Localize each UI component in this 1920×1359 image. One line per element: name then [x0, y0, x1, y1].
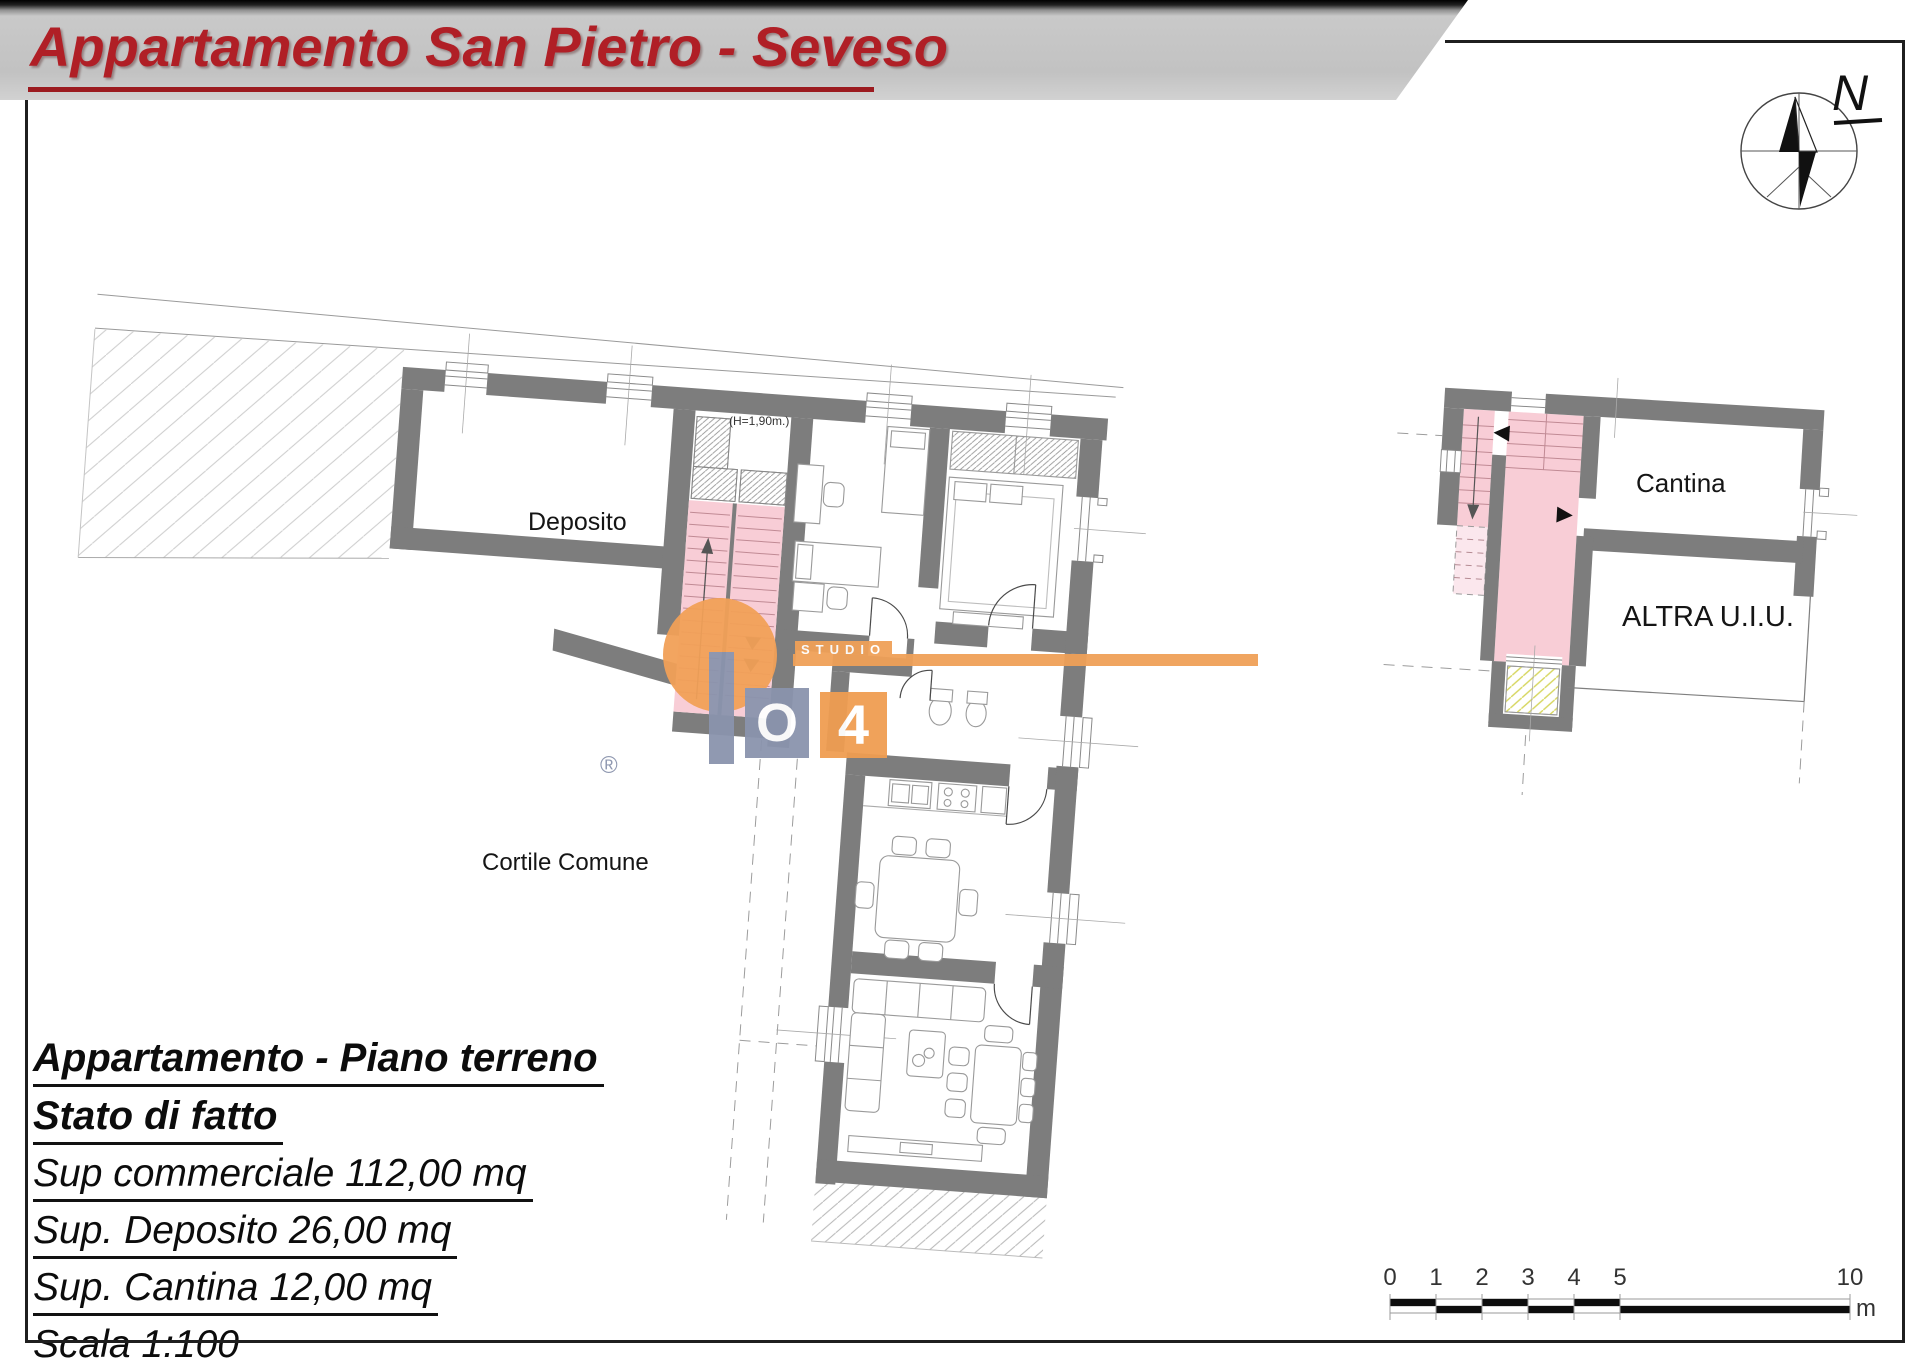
info-line-sup-commerciale: Sup commerciale 112,00 mq	[33, 1152, 604, 1202]
room-label-deposito: Deposito	[528, 508, 627, 537]
page-border-top	[1445, 40, 1905, 43]
info-block: Appartamento - Piano terreno Stato di fa…	[33, 1036, 604, 1359]
courtyard-hatch	[78, 327, 404, 580]
page-border-right	[1902, 40, 1905, 1343]
scale-bar-graphic	[1390, 1294, 1850, 1320]
info-line-title: Appartamento - Piano terreno	[33, 1036, 604, 1087]
title-underline	[28, 87, 874, 92]
plan-sheet: N De	[0, 0, 1920, 1359]
room-label-cantina: Cantina	[1636, 468, 1726, 499]
logo-studio-label: STUDIO	[795, 641, 892, 658]
page-border-left	[25, 100, 28, 1343]
info-line-sup-cantina: Sup. Cantina 12,00 mq	[33, 1266, 604, 1316]
page-title: Appartamento San Pietro - Seveso	[30, 14, 948, 79]
info-line-sup-deposito: Sup. Deposito 26,00 mq	[33, 1209, 604, 1259]
cellar-plan-drawing	[1376, 365, 1864, 814]
scale-tick-0: 0	[1372, 1264, 1408, 1292]
north-compass: N	[1741, 65, 1882, 209]
scale-unit-label: m	[1856, 1295, 1876, 1323]
scale-tick-3: 3	[1510, 1264, 1546, 1292]
logo-bar-1	[709, 652, 734, 764]
scale-tick-2: 2	[1464, 1264, 1500, 1292]
scale-tick-5: 5	[1602, 1264, 1638, 1292]
info-line-state: Stato di fatto	[33, 1094, 604, 1145]
room-label-altra-uiu: ALTRA U.I.U.	[1622, 601, 1794, 634]
scale-tick-10: 10	[1832, 1264, 1868, 1292]
compass-n-text: N	[1832, 65, 1869, 121]
title-banner: Appartamento San Pietro - Seveso	[0, 0, 1468, 100]
logo-digit-4: 4	[820, 692, 887, 758]
room-label-cortile-comune: Cortile Comune	[482, 849, 649, 877]
annotation-height-note: (H=1,90m.)	[729, 414, 789, 428]
scale-tick-1: 1	[1418, 1264, 1454, 1292]
logo-letter-o: O	[745, 688, 809, 758]
page-border-bottom	[25, 1340, 1905, 1343]
scale-tick-4: 4	[1556, 1264, 1592, 1292]
registered-mark: ®	[600, 752, 618, 780]
